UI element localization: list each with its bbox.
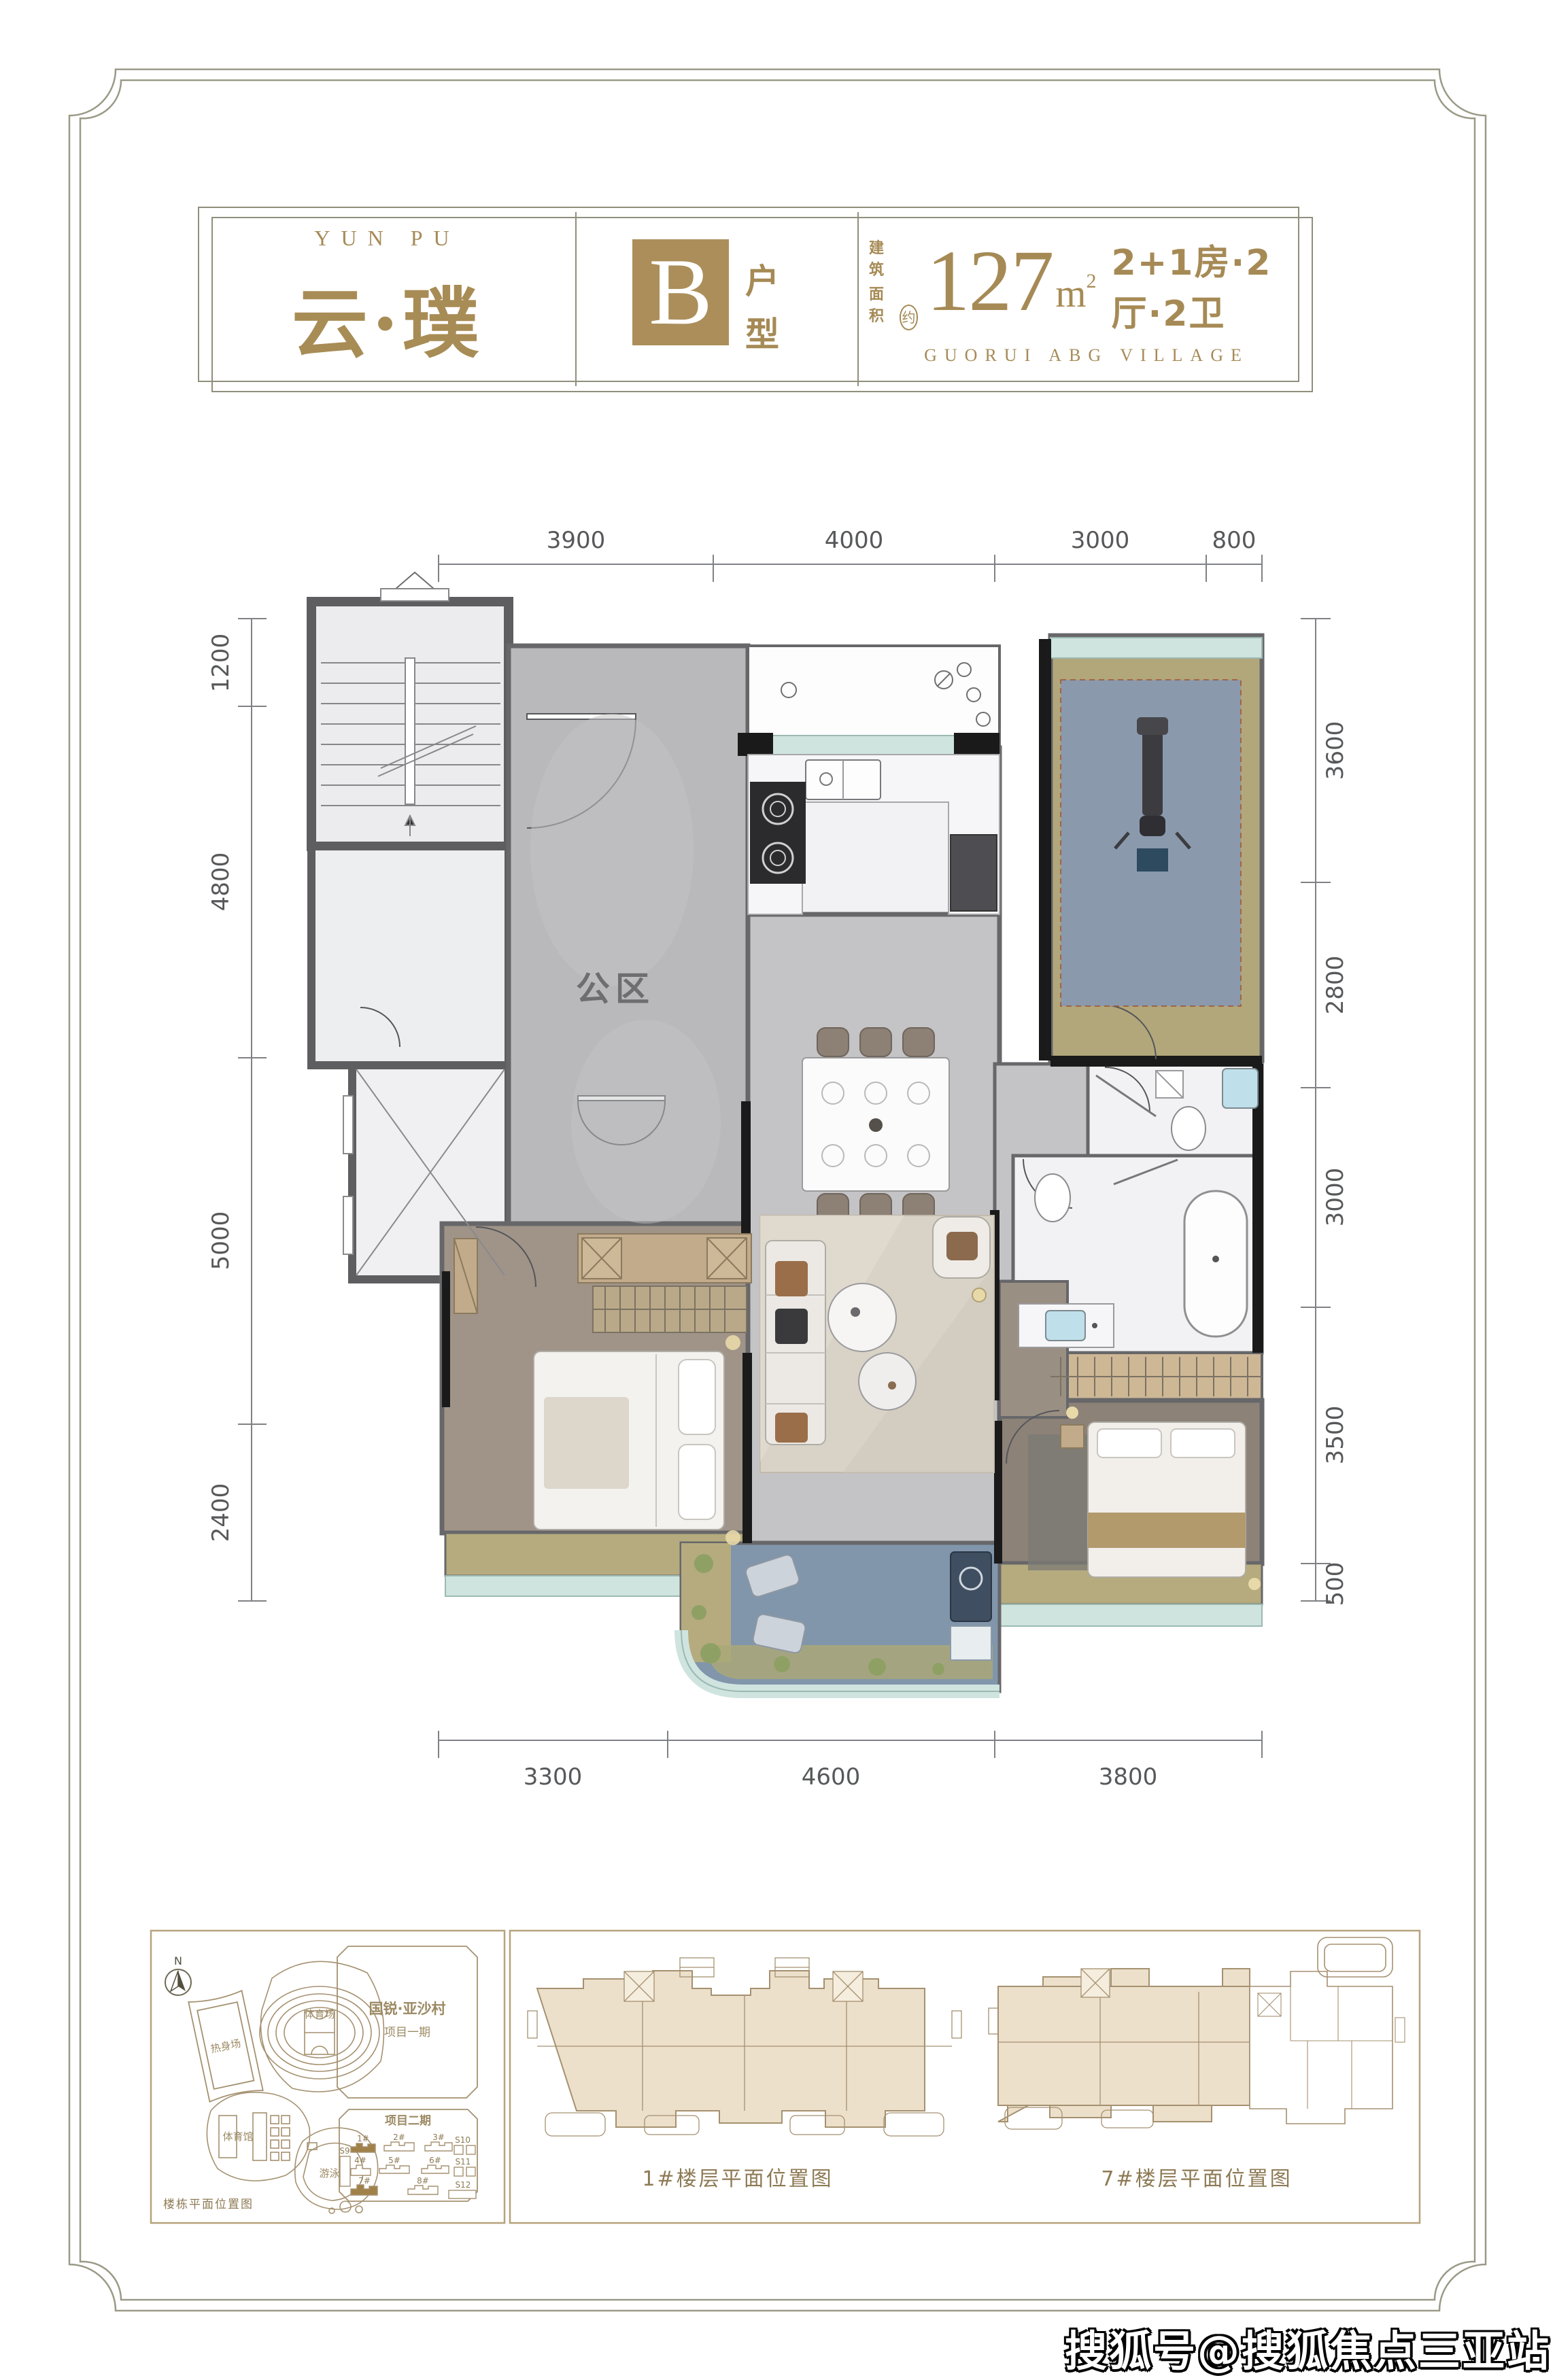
svg-text:800: 800 [1212, 527, 1257, 554]
master-window [999, 1604, 1262, 1626]
svg-text:2800: 2800 [1322, 956, 1349, 1015]
watermark: 搜狐号@搜狐焦点三亚站 [1065, 2317, 1551, 2378]
bedroom2-closet [578, 1234, 751, 1283]
svg-text:3600: 3600 [1322, 721, 1349, 780]
stove [750, 782, 806, 884]
area-value: 127 [926, 243, 1053, 318]
svg-text:3300: 3300 [524, 1763, 583, 1791]
building7-highlight-unit [1250, 1937, 1405, 2124]
stadium-label: 体育场 [304, 2008, 335, 2020]
coffee-table-1 [828, 1283, 896, 1351]
marble-hint2 [571, 1020, 721, 1224]
bedroom2-bed [534, 1351, 724, 1530]
marble-hint [530, 714, 694, 986]
bldg-8-label: 8# [417, 2176, 429, 2186]
unit-type-char1: 户 [738, 254, 786, 303]
area-label-line1: 建筑 [869, 236, 894, 279]
svg-text:3000: 3000 [1322, 1168, 1349, 1227]
svg-text:4000: 4000 [825, 527, 884, 554]
warmup-field-label: 热身场 [209, 2037, 242, 2056]
area-label: 建筑 面积 [869, 236, 894, 326]
bldg-2-label: 2# [393, 2133, 405, 2142]
area-approx-badge: 约 [900, 305, 919, 330]
washer [951, 1552, 991, 1660]
fridge [951, 835, 997, 911]
building7-plate [989, 1937, 1405, 2129]
site-plan-caption: 楼栋平面位置图 [163, 2198, 254, 2211]
bldg-1-label: 1# [357, 2134, 369, 2143]
svg-text:2400: 2400 [207, 1483, 235, 1542]
bldg-4-label: 4# [354, 2156, 366, 2165]
armchair [933, 1217, 990, 1278]
coffee-table-2 [859, 1353, 916, 1410]
svg-text:3500: 3500 [1322, 1406, 1349, 1465]
bathtub [1184, 1191, 1247, 1336]
compass-icon [165, 1969, 191, 1995]
public-area-label: 公区 [576, 969, 655, 1009]
kitchen-window [772, 736, 955, 755]
subtitle-english: GUORUI ABG VILLAGE [869, 345, 1304, 366]
svg-text:4600: 4600 [802, 1763, 861, 1791]
building1-caption: 1#楼层平面位置图 [642, 2167, 833, 2191]
s9-label: S9 [339, 2146, 349, 2156]
svg-text:3900: 3900 [547, 527, 606, 554]
bldg-3-label: 3# [432, 2133, 445, 2142]
unit-type-char2: 型 [738, 307, 786, 356]
svg-text:3000: 3000 [1071, 527, 1130, 554]
master-corridor [999, 1281, 1067, 1417]
gym-label: 体育馆 [222, 2131, 253, 2143]
floorplan-poster-page: { "header": { "brand_en": "YUN PU", "bra… [0, 0, 1555, 2380]
bldg-6-label: 6# [429, 2156, 441, 2165]
building7-caption: 7#楼层平面位置图 [1101, 2167, 1292, 2191]
building1-plate [528, 1958, 961, 2136]
stadium [260, 1961, 384, 2092]
svg-text:4800: 4800 [207, 852, 235, 912]
s12-label: S12 [456, 2180, 471, 2190]
site-plan-panel: N 热身场 体育场 体育馆 [151, 1931, 505, 2223]
svg-text:3800: 3800 [1099, 1763, 1158, 1791]
living-room [760, 1215, 994, 1472]
bldg-5-label: 5# [388, 2156, 400, 2165]
brand-english: YUN PU [199, 226, 576, 251]
brand-chinese: 云·璞 [199, 262, 576, 373]
floor-plan: 3900 4000 3000 800 3300 4600 3800 1200 4… [207, 527, 1349, 1791]
area-unit: m2 [1055, 270, 1096, 316]
s11-label: S11 [456, 2157, 471, 2167]
area-superscript: 2 [1087, 270, 1097, 292]
building-plates-panel: 1#楼层平面位置图 [510, 1931, 1420, 2223]
unit-letter: B [632, 239, 729, 345]
bedroom2-wardrobe [593, 1286, 747, 1332]
sofa [766, 1241, 825, 1445]
area-label-line2: 面积 [869, 282, 894, 326]
flex-window [1050, 638, 1262, 658]
balcony [681, 1543, 999, 1691]
svg-text:5000: 5000 [207, 1211, 235, 1271]
area-info-row: 建筑 面积 约 127 m2 2+1房·2厅·2卫 [869, 230, 1304, 332]
s10-label: S10 [455, 2135, 471, 2145]
flex-room-detail [1061, 680, 1241, 1006]
phase2-title: 项目二期 [385, 2114, 431, 2128]
svg-text:1200: 1200 [207, 634, 235, 693]
bldg-7-label: 7# [358, 2176, 371, 2186]
entry-lobby [311, 846, 509, 1065]
compass-label: N [174, 1954, 182, 1967]
phase2-box: 项目二期 1# 2# 3# 4# 5# 6# 7# 8# [339, 2109, 477, 2201]
layout-text: 2+1房·2厅·2卫 [1112, 234, 1304, 336]
dining-set [802, 1028, 949, 1222]
floor-lamp [972, 1288, 986, 1302]
phase1-name: 国锐·亚沙村 [369, 2001, 446, 2017]
svg-text:500: 500 [1322, 1562, 1349, 1606]
phase1-sub: 项目一期 [384, 2026, 430, 2039]
